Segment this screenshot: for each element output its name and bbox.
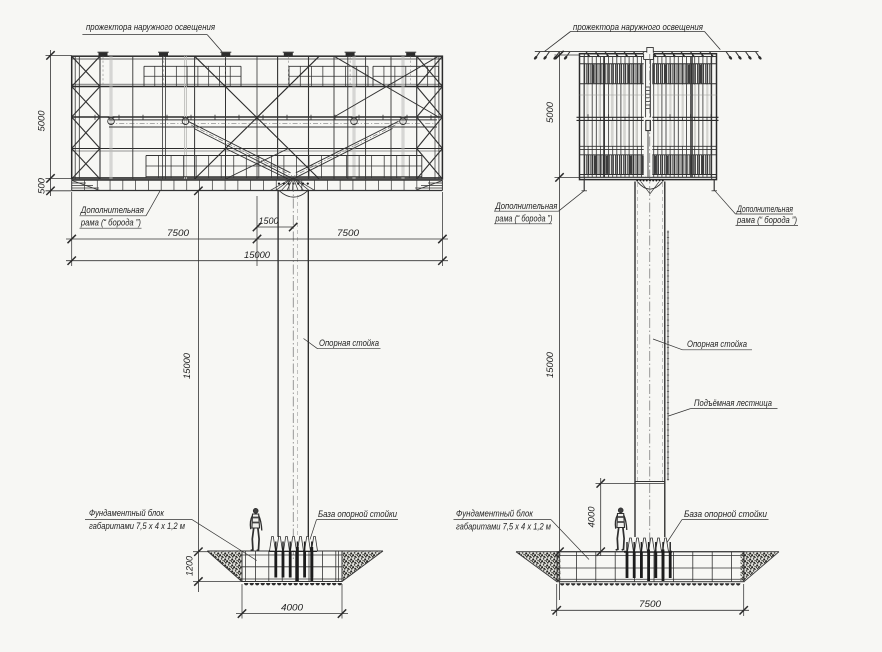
svg-text:рама (“ борода ”): рама (“ борода ”) [736,215,797,225]
svg-text:База опорной стойки: База опорной стойки [684,509,767,519]
svg-text:7500: 7500 [639,599,662,610]
svg-text:рама (“ борода ”): рама (“ борода ”) [495,214,553,224]
svg-text:прожектора наружного освещения: прожектора наружного освещения [573,22,703,32]
svg-text:4000: 4000 [281,603,304,614]
svg-text:15000: 15000 [182,352,192,379]
svg-text:Дополнительная: Дополнительная [495,201,558,211]
svg-text:4000: 4000 [586,506,596,528]
svg-text:габаритами 7,5 х 4 х 1,2 м: габаритами 7,5 х 4 х 1,2 м [456,522,551,532]
svg-text:Дополнительная: Дополнительная [736,204,793,214]
svg-text:7500: 7500 [337,228,360,239]
svg-text:Дополнительная: Дополнительная [80,205,144,215]
svg-text:прожектора наружного освещения: прожектора наружного освещения [86,22,215,32]
svg-text:рама (“ борода ”): рама (“ борода ”) [80,218,141,228]
svg-text:габаритами 7,5 х 4 х 1,2 м: габаритами 7,5 х 4 х 1,2 м [89,521,185,531]
svg-text:Подъёмная лестница: Подъёмная лестница [694,398,772,408]
svg-text:Опорная стойка: Опорная стойка [687,339,747,349]
svg-text:1200: 1200 [185,555,195,576]
svg-text:500: 500 [37,177,47,194]
svg-text:7500: 7500 [167,228,190,239]
svg-text:Фундаментный блок: Фундаментный блок [456,509,534,519]
svg-text:5000: 5000 [545,101,555,123]
svg-text:15000: 15000 [545,351,555,378]
svg-text:1500: 1500 [259,216,280,227]
svg-text:Фундаментный блок: Фундаментный блок [89,508,165,518]
svg-text:База опорной стойки: База опорной стойки [318,509,397,519]
svg-text:5000: 5000 [37,110,47,132]
svg-text:Опорная стойка: Опорная стойка [319,338,379,348]
svg-text:15000: 15000 [244,250,271,261]
